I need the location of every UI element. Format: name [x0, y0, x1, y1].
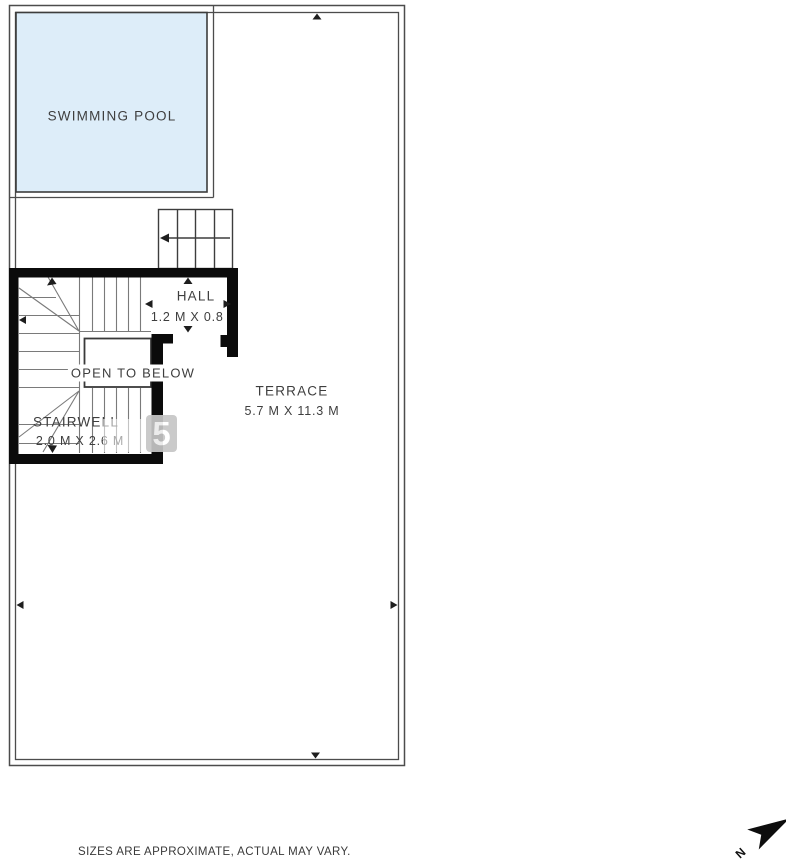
room-label-hall: HALL: [177, 289, 216, 304]
stair-direction-arrow-icon: [19, 316, 26, 324]
stair-direction-arrow-icon: [160, 234, 169, 243]
room-label-swimming-pool: SWIMMING POOL: [48, 109, 177, 124]
swimming-pool-shape: [10, 6, 214, 198]
room-label-open-to-below: OPEN TO BELOW: [68, 365, 198, 382]
room-label-terrace: TERRACE: [256, 384, 329, 399]
hall-dimension-arrows: [145, 278, 231, 333]
room-dimensions-terrace: 5.7 M X 11.3 M: [244, 404, 339, 418]
disclaimer-text: SIZES ARE APPROXIMATE, ACTUAL MAY VARY.: [78, 846, 351, 858]
compass: N: [733, 809, 786, 862]
watermark-text: 5: [152, 417, 170, 450]
watermark-badge: 5: [146, 415, 177, 452]
floor-plan-page: N SWIMMING POOL HALL 1.2 M X 0.8 M OPEN …: [0, 0, 786, 868]
upper-staircase: [159, 210, 233, 269]
watermark-overlay: [103, 419, 147, 452]
compass-north-label: N: [733, 845, 749, 861]
north-arrow-icon: [747, 809, 786, 850]
